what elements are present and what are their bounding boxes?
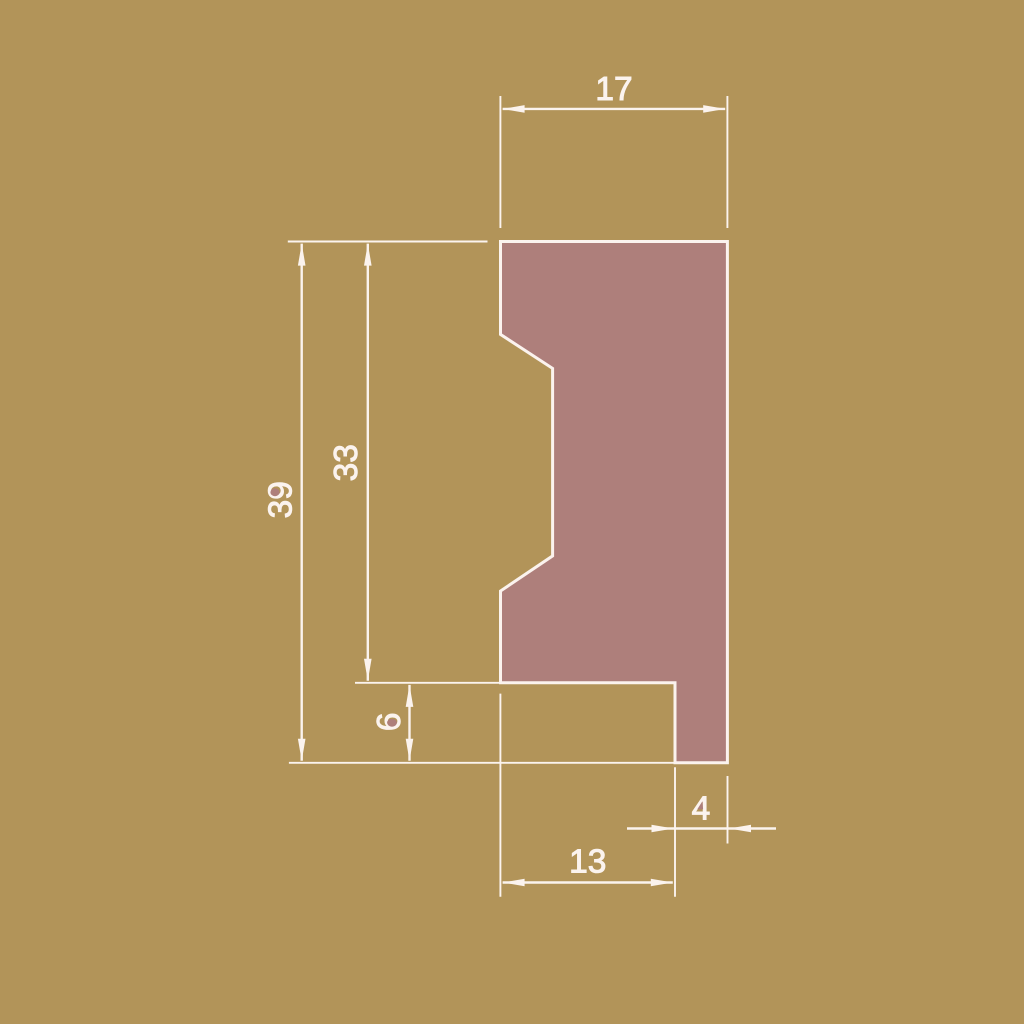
svg-text:13: 13 — [569, 844, 606, 881]
svg-text:39: 39 — [263, 481, 300, 518]
svg-text:17: 17 — [595, 71, 632, 108]
svg-text:33: 33 — [328, 444, 365, 481]
